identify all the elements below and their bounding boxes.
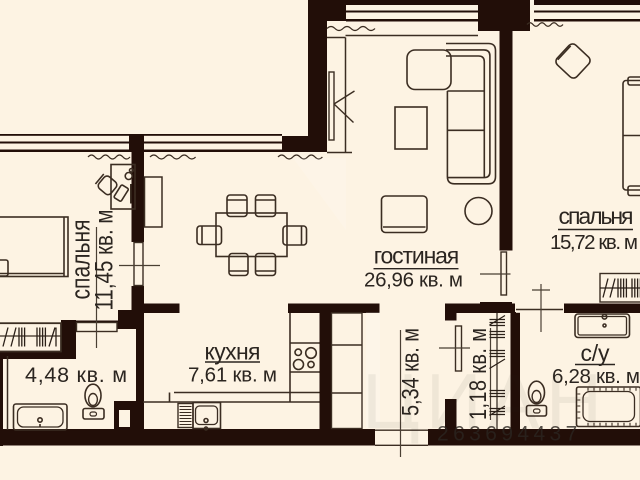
svg-text:гостиная: гостиная [374,243,460,269]
svg-text:11,45 кв. м: 11,45 кв. м [91,210,118,311]
svg-text:7,61 кв. м: 7,61 кв. м [188,364,277,387]
svg-text:кухня: кухня [205,339,261,365]
svg-text:спальня: спальня [559,203,634,229]
svg-text:26,96 кв. м: 26,96 кв. м [364,269,463,292]
svg-text:4,48 кв. м: 4,48 кв. м [25,363,127,387]
svg-text:15,72 кв. м: 15,72 кв. м [550,231,638,254]
svg-text:263694437: 263694437 [437,423,582,446]
